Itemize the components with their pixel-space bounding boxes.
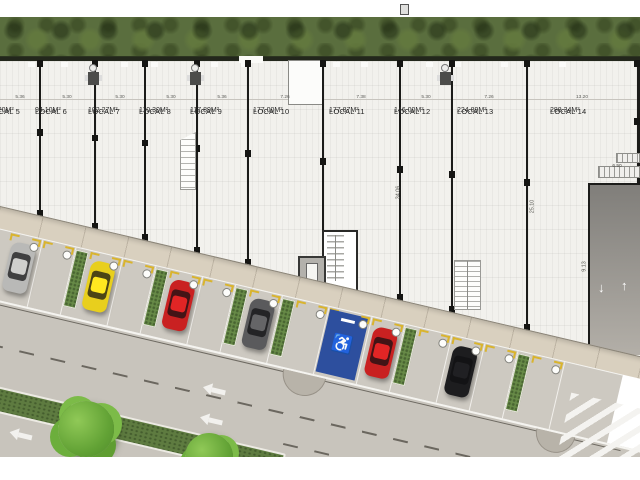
ramp-grating — [616, 153, 640, 163]
road-left-arrow-icon — [18, 432, 33, 440]
dim-ramp-depth: 9.13 — [581, 261, 587, 272]
unit-wall — [399, 61, 401, 300]
unit-width-dim: 13.20 — [573, 94, 591, 99]
restroom-fixture-cluster — [85, 66, 102, 86]
unit-wall — [144, 61, 146, 240]
unit-wall — [526, 61, 528, 330]
restroom-fixture-cluster — [437, 66, 454, 86]
unit-width-dim: 5.30 — [111, 94, 129, 99]
unit-width-dim: 7.26 — [480, 94, 498, 99]
spot-number-marker — [141, 268, 152, 279]
unit-area: 224.89M² — [457, 107, 487, 114]
unit-width-dim: 7.26 — [276, 94, 294, 99]
unit-area: 177.87M² — [329, 107, 359, 114]
unit-area: 102.27M² — [88, 107, 118, 114]
unit-area: 85.20M² — [0, 107, 14, 114]
unit-width-dim: 5.36 — [11, 94, 29, 99]
unit-width-dim: 5.30 — [162, 94, 180, 99]
road-left-arrow-icon — [208, 417, 223, 425]
dim-local11-depth: 34.06 — [395, 186, 401, 200]
spot-number-marker — [315, 309, 326, 320]
unit-area: 94.10M² — [35, 107, 61, 114]
unit-area: 146.00M² — [394, 107, 424, 114]
unit-width-dim: 7.38 — [352, 94, 370, 99]
unit-width-dim: 5.30 — [58, 94, 76, 99]
road-left-arrow-icon — [211, 387, 226, 395]
unit-area: 288.34M² — [550, 107, 580, 114]
unit-area: 110.30M² — [139, 107, 168, 114]
unit-width-dim: 5.36 — [213, 94, 231, 99]
spot-number-marker — [62, 250, 73, 261]
dim-local13-depth: 25.10 — [529, 200, 535, 214]
page-margin — [0, 457, 640, 480]
dim-ramp-width: 6.50 — [609, 163, 625, 168]
stair-local8 — [180, 132, 196, 190]
unit-wall — [94, 61, 96, 228]
unit-wall — [39, 61, 41, 215]
unit-wall — [451, 61, 453, 312]
spot-number-marker — [504, 353, 515, 364]
spot-number-marker — [437, 338, 448, 349]
site-plan: LOCAL 585.20M²5.36LOCAL 694.10M²5.30LOCA… — [0, 0, 640, 480]
hedge-row — [0, 17, 640, 58]
wheelchair-icon: ♿ — [321, 331, 365, 360]
roof-vent-marker — [400, 4, 409, 15]
vehicle-ramp — [588, 183, 640, 355]
back-wall-vents — [28, 62, 35, 67]
stair-local12 — [454, 260, 481, 310]
ramp-up-arrow-icon: ↑ — [621, 278, 628, 293]
unit-width-dim: 5.30 — [417, 94, 435, 99]
ramp-down-arrow-icon: ↓ — [598, 280, 605, 295]
unit-area: 117.89M² — [190, 107, 219, 114]
unit-area: 177.00M² — [253, 107, 283, 114]
spot-number-marker — [550, 364, 561, 375]
unit-wall — [247, 61, 249, 264]
spot-number-marker — [221, 287, 232, 298]
unit-wall — [196, 61, 198, 252]
page-margin — [0, 0, 640, 17]
restroom-fixture-cluster — [187, 66, 204, 86]
tree — [58, 401, 114, 457]
